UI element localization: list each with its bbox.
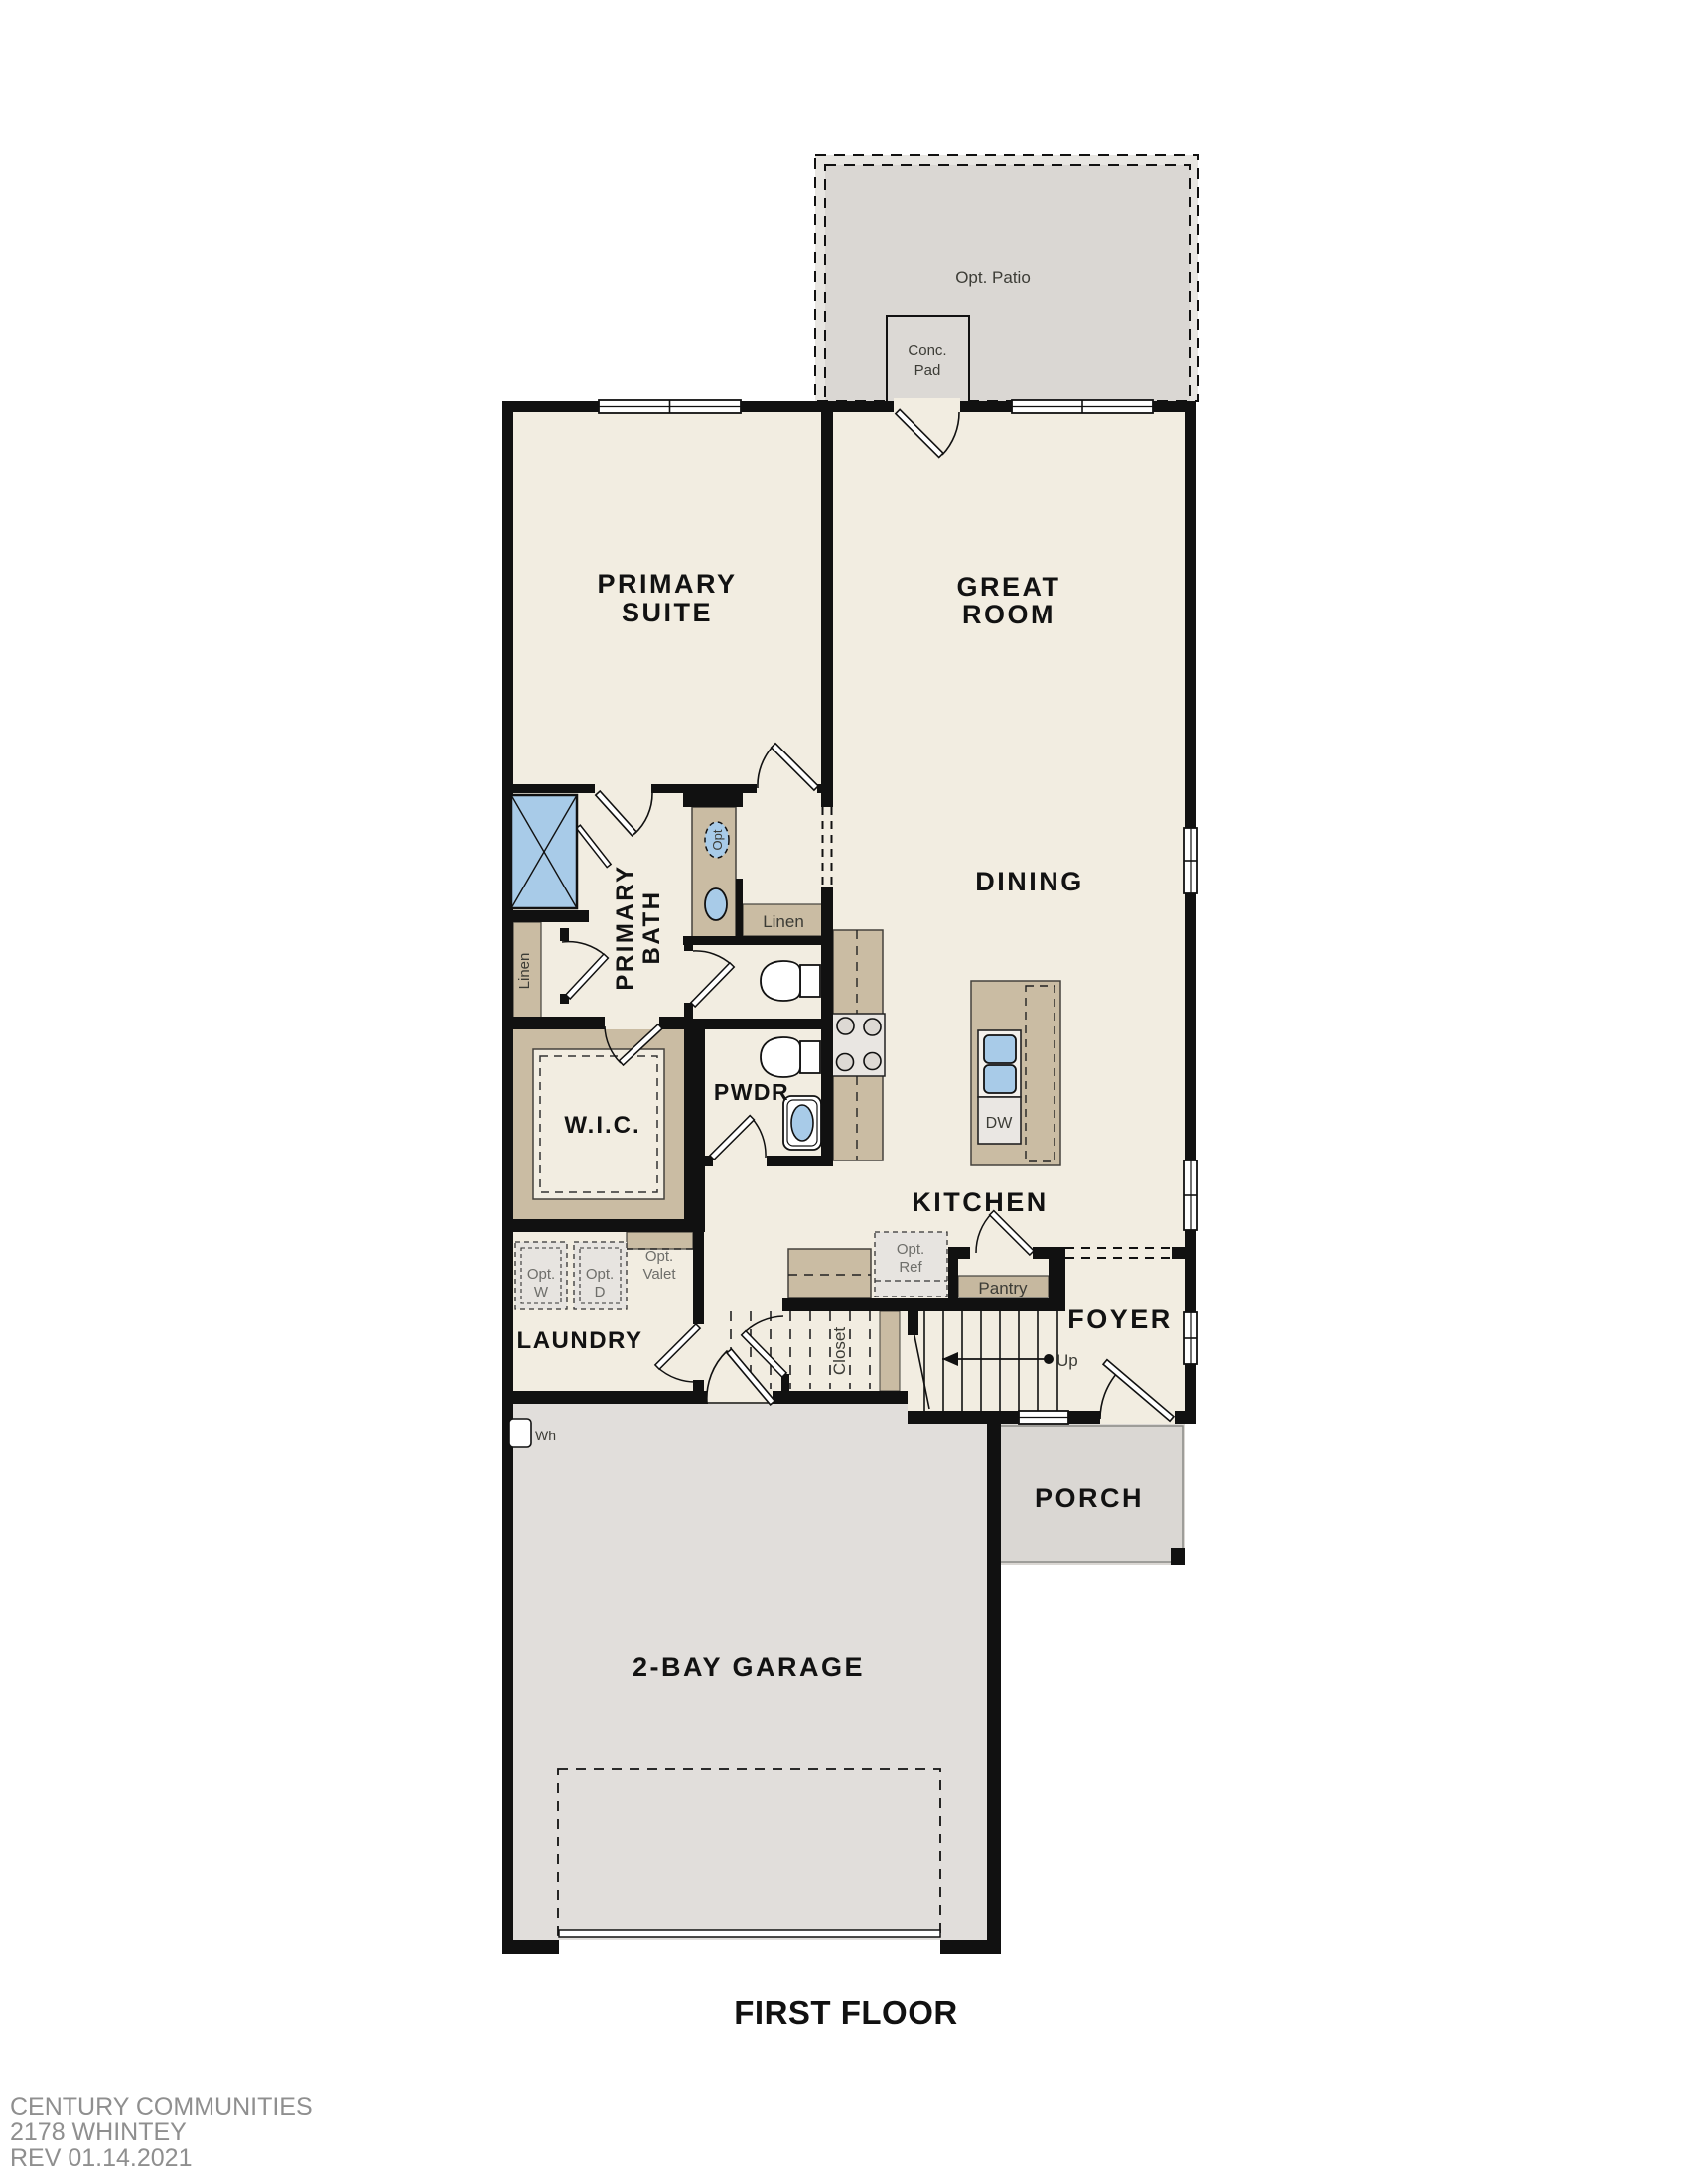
svg-text:FIRST FLOOR: FIRST FLOOR (734, 1994, 957, 2031)
svg-text:FOYER: FOYER (1067, 1304, 1173, 1334)
svg-text:Opt: Opt (710, 829, 725, 850)
svg-text:Opt.: Opt. (527, 1266, 555, 1283)
svg-text:Pantry: Pantry (978, 1279, 1028, 1297)
svg-text:Ref: Ref (899, 1259, 922, 1276)
svg-text:REV 01.14.2021: REV 01.14.2021 (10, 2144, 192, 2172)
svg-text:SUITE: SUITE (622, 598, 713, 627)
svg-text:Valet: Valet (642, 1266, 676, 1283)
svg-text:PORCH: PORCH (1035, 1483, 1144, 1513)
svg-text:D: D (595, 1284, 606, 1300)
svg-text:Opt.: Opt. (897, 1241, 924, 1258)
svg-text:Pad: Pad (914, 362, 941, 379)
svg-text:CENTURY COMMUNITIES: CENTURY COMMUNITIES (10, 2093, 313, 2120)
svg-text:GREAT: GREAT (957, 572, 1061, 602)
svg-text:Wh: Wh (535, 1428, 556, 1443)
svg-text:W: W (534, 1284, 549, 1300)
svg-text:Linen: Linen (763, 912, 804, 931)
svg-text:PRIMARY: PRIMARY (597, 569, 737, 599)
svg-text:W.I.C.: W.I.C. (564, 1112, 640, 1139)
svg-text:Opt. Patio: Opt. Patio (955, 268, 1031, 287)
svg-text:KITCHEN: KITCHEN (912, 1187, 1049, 1217)
svg-text:Closet: Closet (830, 1327, 849, 1375)
svg-text:BATH: BATH (638, 890, 665, 965)
svg-text:LAUNDRY: LAUNDRY (517, 1327, 643, 1354)
svg-text:Linen: Linen (516, 953, 533, 990)
svg-text:Opt.: Opt. (645, 1248, 673, 1265)
svg-text:DW: DW (986, 1115, 1014, 1132)
svg-text:PWDR: PWDR (714, 1079, 789, 1105)
svg-text:2-BAY GARAGE: 2-BAY GARAGE (633, 1652, 865, 1682)
svg-text:Up: Up (1056, 1351, 1078, 1370)
svg-text:2178 WHINTEY: 2178 WHINTEY (10, 2118, 187, 2146)
svg-text:Opt.: Opt. (586, 1266, 614, 1283)
svg-text:ROOM: ROOM (962, 600, 1055, 629)
svg-text:PRIMARY: PRIMARY (612, 864, 638, 990)
svg-text:DINING: DINING (975, 867, 1084, 896)
svg-text:Conc.: Conc. (908, 342, 946, 359)
